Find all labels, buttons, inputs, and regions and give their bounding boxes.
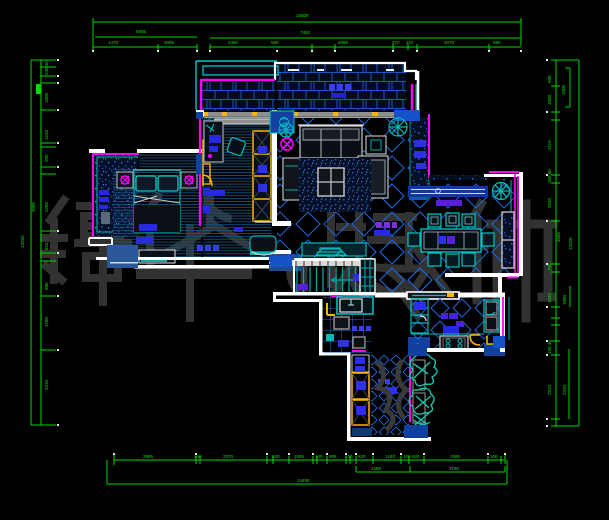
svg-text:2095: 2095 (164, 40, 175, 45)
svg-text:100: 100 (490, 454, 498, 459)
svg-text:7450: 7450 (300, 30, 311, 35)
svg-text:15508: 15508 (296, 13, 309, 18)
svg-text:1280: 1280 (371, 466, 382, 471)
svg-text:150 40: 150 40 (547, 340, 552, 354)
svg-text:14458: 14458 (297, 478, 310, 483)
svg-text:3190: 3190 (449, 466, 460, 471)
svg-text:1780: 1780 (44, 316, 49, 327)
svg-text:240 40: 240 40 (44, 61, 49, 75)
svg-text:370: 370 (392, 40, 400, 45)
svg-text:700: 700 (547, 263, 552, 271)
svg-text:2965: 2965 (143, 454, 154, 459)
svg-text:920: 920 (272, 454, 280, 459)
svg-text:2250: 2250 (44, 201, 49, 212)
svg-text:880: 880 (44, 282, 49, 290)
svg-text:1470: 1470 (108, 40, 119, 45)
svg-text:1240: 1240 (385, 454, 396, 459)
svg-text:100 80: 100 80 (547, 169, 552, 183)
svg-text:100: 100 (403, 454, 411, 459)
svg-text:1000: 1000 (547, 94, 552, 105)
svg-text:3085: 3085 (31, 201, 36, 212)
svg-text:2590: 2590 (450, 454, 461, 459)
svg-text:500: 500 (547, 75, 552, 83)
svg-text:3585: 3585 (556, 231, 561, 242)
svg-text:2840: 2840 (547, 197, 552, 208)
svg-text:210: 210 (406, 40, 414, 45)
svg-text:1940: 1940 (547, 292, 552, 303)
svg-text:1500: 1500 (561, 84, 566, 95)
svg-text:2370: 2370 (223, 454, 234, 459)
svg-text:815: 815 (44, 242, 49, 250)
svg-text:1245: 1245 (44, 129, 49, 140)
svg-text:13250: 13250 (20, 235, 25, 248)
svg-text:990: 990 (493, 40, 501, 45)
svg-text:905: 905 (329, 454, 337, 459)
svg-text:200: 200 (44, 154, 49, 162)
svg-text:2070: 2070 (444, 40, 455, 45)
svg-text:13250: 13250 (568, 237, 573, 250)
svg-text:4060: 4060 (338, 40, 349, 45)
svg-text:140: 140 (315, 454, 323, 459)
svg-text:5905: 5905 (136, 29, 147, 34)
svg-text:2310: 2310 (562, 384, 567, 395)
svg-text:2110: 2110 (547, 140, 552, 150)
svg-text:620: 620 (412, 454, 420, 459)
svg-text:580: 580 (271, 40, 279, 45)
svg-text:620: 620 (358, 454, 366, 459)
svg-text:1000: 1000 (44, 92, 49, 103)
svg-text:2310: 2310 (547, 384, 552, 395)
svg-text:2310: 2310 (44, 379, 49, 390)
svg-text:2460: 2460 (228, 40, 239, 45)
svg-text:1880: 1880 (562, 294, 567, 305)
svg-text:1085: 1085 (294, 454, 305, 459)
